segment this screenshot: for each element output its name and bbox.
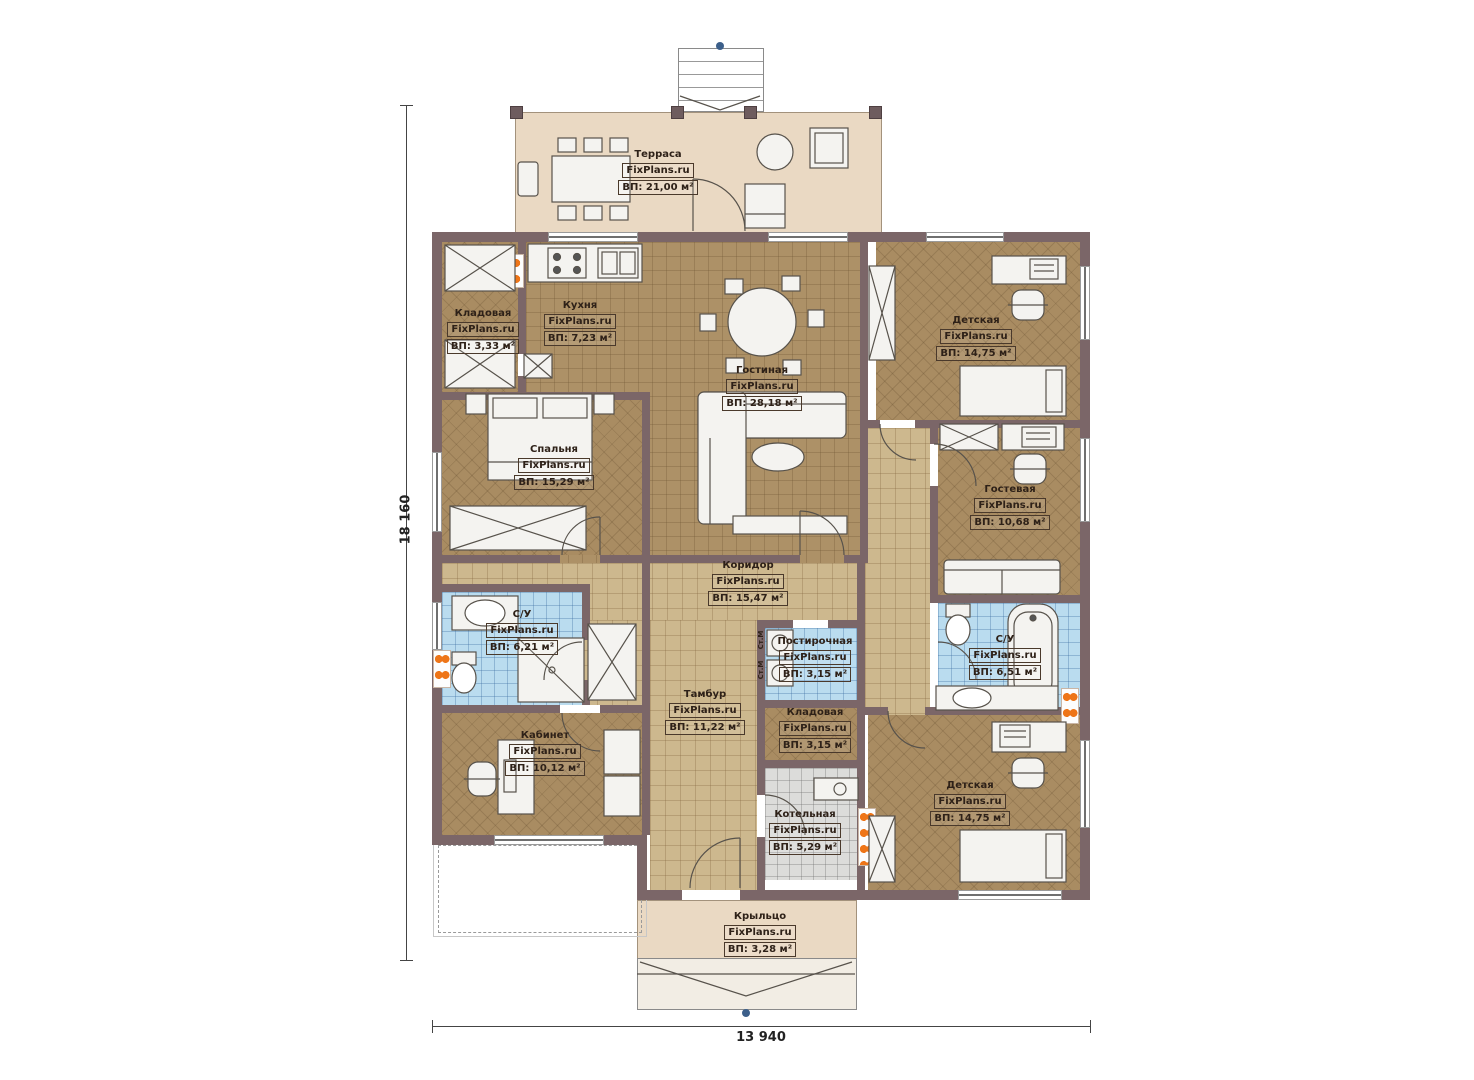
room-area: ВП: 10,68 м² [970, 515, 1049, 530]
dimension-tick [400, 105, 413, 106]
radiator [858, 808, 876, 866]
wall [642, 563, 650, 835]
radiator [433, 650, 451, 688]
room-label-guest: Гостевая FixPlans.ru ВП: 10,68 м² [964, 484, 1056, 530]
room-name: Котельная [774, 809, 835, 821]
room-label-laundry: Постирочная FixPlans.ru ВП: 3,15 м² [769, 636, 861, 682]
room-watermark: FixPlans.ru [934, 794, 1005, 809]
room-watermark: FixPlans.ru [769, 823, 840, 838]
room-watermark: FixPlans.ru [726, 379, 797, 394]
room-label-pantry-top: Кладовая FixPlans.ru ВП: 3,33 м² [437, 308, 529, 354]
window [548, 232, 638, 242]
wall [432, 584, 590, 592]
room-area: ВП: 7,23 м² [544, 331, 616, 346]
radiator [1061, 688, 1079, 724]
room-watermark: FixPlans.ru [486, 623, 557, 638]
roof-overhang-dashed [438, 845, 642, 933]
wall [915, 420, 1090, 428]
floor-hallway [865, 428, 930, 715]
room-area: ВП: 21,00 м² [618, 180, 697, 195]
room-name: Гостевая [984, 484, 1035, 496]
room-name: С/У [996, 634, 1015, 646]
room-label-living: Гостиная FixPlans.ru ВП: 28,18 м² [716, 365, 808, 411]
room-watermark: FixPlans.ru [509, 744, 580, 759]
room-name: Коридор [722, 560, 773, 572]
dimension-line-width [432, 1026, 1090, 1027]
room-watermark: FixPlans.ru [712, 574, 783, 589]
wall [860, 232, 868, 563]
room-name: Кладовая [787, 707, 844, 719]
terrace-post [671, 106, 684, 119]
room-label-bath-left: С/У FixPlans.ru ВП: 6,21 м² [476, 609, 568, 655]
window [768, 232, 848, 242]
room-watermark: FixPlans.ru [669, 703, 740, 718]
wall [930, 486, 938, 595]
room-name: Кабинет [521, 730, 569, 742]
porch-steps [637, 958, 857, 1010]
wall [642, 392, 650, 563]
room-label-kids-top: Детская FixPlans.ru ВП: 14,75 м² [930, 315, 1022, 361]
wall [432, 705, 560, 713]
room-area: ВП: 5,29 м² [769, 840, 841, 855]
dimension-tick [400, 960, 413, 961]
room-area: ВП: 6,51 м² [969, 665, 1041, 680]
terrace-post [510, 106, 523, 119]
floor-vestibule [650, 620, 757, 890]
room-label-boiler: Котельная FixPlans.ru ВП: 5,29 м² [759, 809, 851, 855]
room-area: ВП: 3,15 м² [779, 738, 851, 753]
room-area: ВП: 10,12 м² [505, 761, 584, 776]
terrace-post [869, 106, 882, 119]
room-label-vestibule: Тамбур FixPlans.ru ВП: 11,22 м² [659, 689, 751, 735]
room-area: ВП: 28,18 м² [722, 396, 801, 411]
wall [930, 595, 1090, 603]
room-watermark: FixPlans.ru [544, 314, 615, 329]
dimension-tick [1090, 1020, 1091, 1033]
room-name: Кладовая [455, 308, 512, 320]
room-label-kitchen: Кухня FixPlans.ru ВП: 7,23 м² [534, 300, 626, 346]
window [1080, 266, 1090, 340]
window [958, 890, 1062, 900]
wall [860, 420, 880, 428]
room-name: Спальня [530, 444, 578, 456]
room-label-terrace: Терраса FixPlans.ru ВП: 21,00 м² [612, 149, 704, 195]
room-name: Терраса [634, 149, 681, 161]
window [1080, 438, 1090, 522]
room-label-pantry-bottom: Кладовая FixPlans.ru ВП: 3,15 м² [769, 707, 861, 753]
room-area: ВП: 14,75 м² [930, 811, 1009, 826]
room-watermark: FixPlans.ru [622, 163, 693, 178]
dimension-height-label: 18 160 [399, 485, 414, 555]
room-name: Детская [952, 315, 999, 327]
wall [757, 768, 765, 795]
wall [582, 680, 590, 705]
dimension-tick [432, 1020, 433, 1033]
room-name: Тамбур [684, 689, 726, 701]
floor-niche [582, 620, 642, 705]
dimension-width-label: 13 940 [716, 1030, 806, 1045]
room-name: Постирочная [778, 636, 853, 648]
room-label-corridor: Коридор FixPlans.ru ВП: 15,47 м² [702, 560, 794, 606]
room-watermark: FixPlans.ru [518, 458, 589, 473]
radiator [498, 254, 524, 288]
floor-plan: 18 160 13 940 [0, 0, 1474, 1080]
room-area: ВП: 3,28 м² [724, 942, 796, 957]
room-watermark: FixPlans.ru [447, 322, 518, 337]
window [432, 452, 442, 532]
wall [432, 555, 560, 563]
room-label-porch: Крыльцо FixPlans.ru ВП: 3,28 м² [714, 911, 806, 957]
room-area: ВП: 15,29 м² [514, 475, 593, 490]
room-watermark: FixPlans.ru [974, 498, 1045, 513]
washing-machine-label: Ст.М [757, 629, 765, 651]
window [432, 602, 442, 650]
room-label-bath-right: С/У FixPlans.ru ВП: 6,51 м² [959, 634, 1051, 680]
terrace-post [744, 106, 757, 119]
terrace-stairs [678, 48, 764, 112]
room-name: С/У [513, 609, 532, 621]
room-watermark: FixPlans.ru [940, 329, 1011, 344]
room-area: ВП: 6,21 м² [486, 640, 558, 655]
wall [930, 428, 938, 444]
room-name: Кухня [563, 300, 597, 312]
wall [828, 620, 865, 628]
washing-machine-label: Ст.М [757, 659, 765, 681]
room-watermark: FixPlans.ru [969, 648, 1040, 663]
room-area: ВП: 3,15 м² [779, 667, 851, 682]
window [926, 232, 1004, 242]
room-watermark: FixPlans.ru [724, 925, 795, 940]
room-label-office: Кабинет FixPlans.ru ВП: 10,12 м² [499, 730, 591, 776]
room-name: Гостиная [736, 365, 788, 377]
room-area: ВП: 3,33 м² [447, 339, 519, 354]
window [1080, 740, 1090, 828]
room-label-kids-bottom: Детская FixPlans.ru ВП: 14,75 м² [924, 780, 1016, 826]
room-watermark: FixPlans.ru [779, 721, 850, 736]
room-name: Крыльцо [734, 911, 786, 923]
room-area: ВП: 11,22 м² [665, 720, 744, 735]
room-label-bedroom: Спальня FixPlans.ru ВП: 15,29 м² [508, 444, 600, 490]
room-name: Детская [946, 780, 993, 792]
wall [582, 592, 590, 640]
entrance-door-opening [682, 890, 740, 900]
window [494, 835, 604, 845]
wall [757, 760, 865, 768]
room-watermark: FixPlans.ru [779, 650, 850, 665]
room-area: ВП: 15,47 м² [708, 591, 787, 606]
wall [432, 392, 650, 400]
room-area: ВП: 14,75 м² [936, 346, 1015, 361]
wall [518, 376, 526, 392]
